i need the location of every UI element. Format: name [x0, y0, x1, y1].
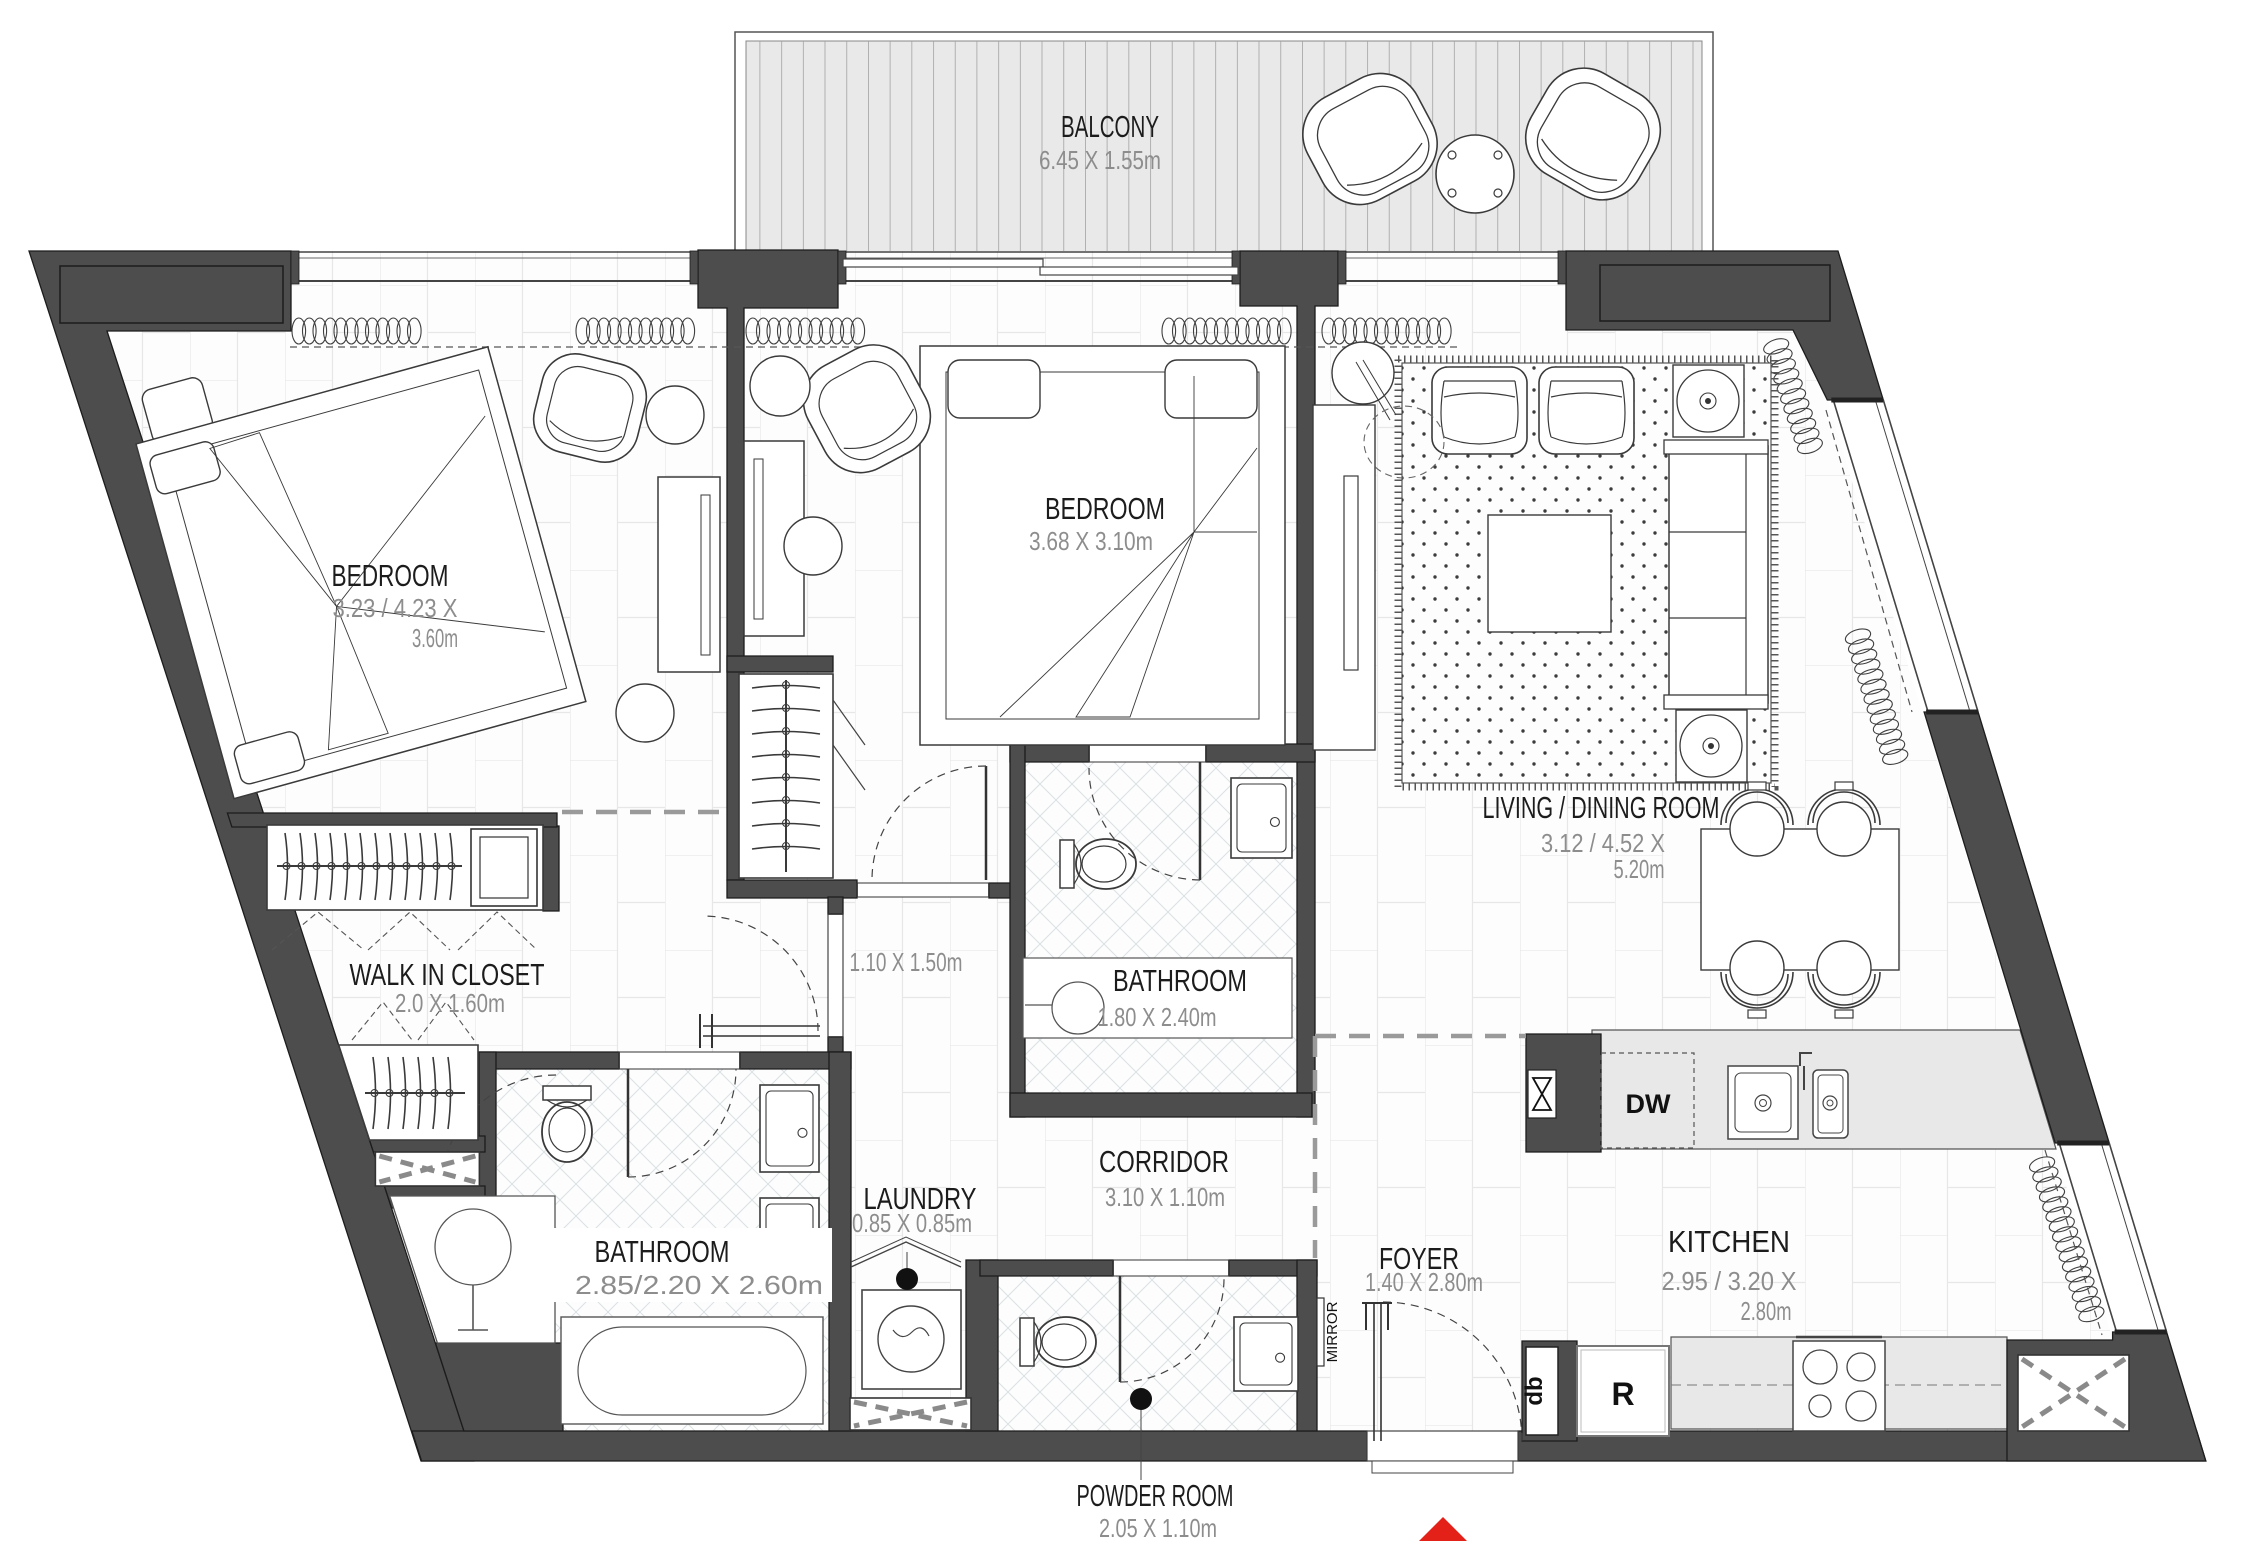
svg-text:2.85/2.20 X 2.60m: 2.85/2.20 X 2.60m [575, 1270, 823, 1300]
svg-text:3.68 X 3.10m: 3.68 X 3.10m [1029, 526, 1153, 556]
svg-text:2.05 X 1.10m: 2.05 X 1.10m [1099, 1513, 1217, 1543]
svg-text:BATHROOM: BATHROOM [595, 1234, 730, 1269]
svg-text:6.45 X 1.55m: 6.45 X 1.55m [1039, 145, 1161, 175]
svg-text:3.10 X 1.10m: 3.10 X 1.10m [1105, 1182, 1225, 1212]
svg-text:BALCONY: BALCONY [1061, 109, 1159, 144]
svg-text:BATHROOM: BATHROOM [1113, 963, 1247, 998]
svg-text:BEDROOM: BEDROOM [1045, 491, 1165, 526]
svg-text:1.40 X 2.80m: 1.40 X 2.80m [1365, 1267, 1483, 1297]
svg-text:2.80m: 2.80m [1741, 1296, 1792, 1326]
svg-text:DW: DW [1626, 1089, 1671, 1119]
svg-text:1.80 X 2.40m: 1.80 X 2.40m [1098, 1002, 1217, 1032]
svg-text:LIVING / DINING ROOM: LIVING / DINING ROOM [1483, 790, 1720, 825]
svg-text:3.23 / 4.23 X: 3.23 / 4.23 X [333, 593, 458, 623]
svg-text:3.60m: 3.60m [412, 623, 458, 653]
svg-text:BEDROOM: BEDROOM [332, 558, 449, 593]
svg-text:5.20m: 5.20m [1614, 854, 1665, 884]
svg-text:CORRIDOR: CORRIDOR [1099, 1144, 1229, 1179]
svg-text:WALK IN CLOSET: WALK IN CLOSET [350, 957, 545, 992]
svg-text:2.95 / 3.20 X: 2.95 / 3.20 X [1662, 1266, 1797, 1296]
svg-text:KITCHEN: KITCHEN [1668, 1224, 1790, 1259]
svg-text:R: R [1611, 1376, 1634, 1412]
svg-text:2.0 X 1.60m: 2.0 X 1.60m [395, 988, 505, 1018]
svg-text:POWDER ROOM: POWDER ROOM [1077, 1478, 1234, 1513]
svg-text:1.10 X 1.50m: 1.10 X 1.50m [850, 947, 963, 977]
svg-text:0.85 X 0.85m: 0.85 X 0.85m [852, 1208, 972, 1238]
svg-text:db: db [1521, 1376, 1548, 1405]
svg-text:MIRROR: MIRROR [1324, 1301, 1341, 1362]
